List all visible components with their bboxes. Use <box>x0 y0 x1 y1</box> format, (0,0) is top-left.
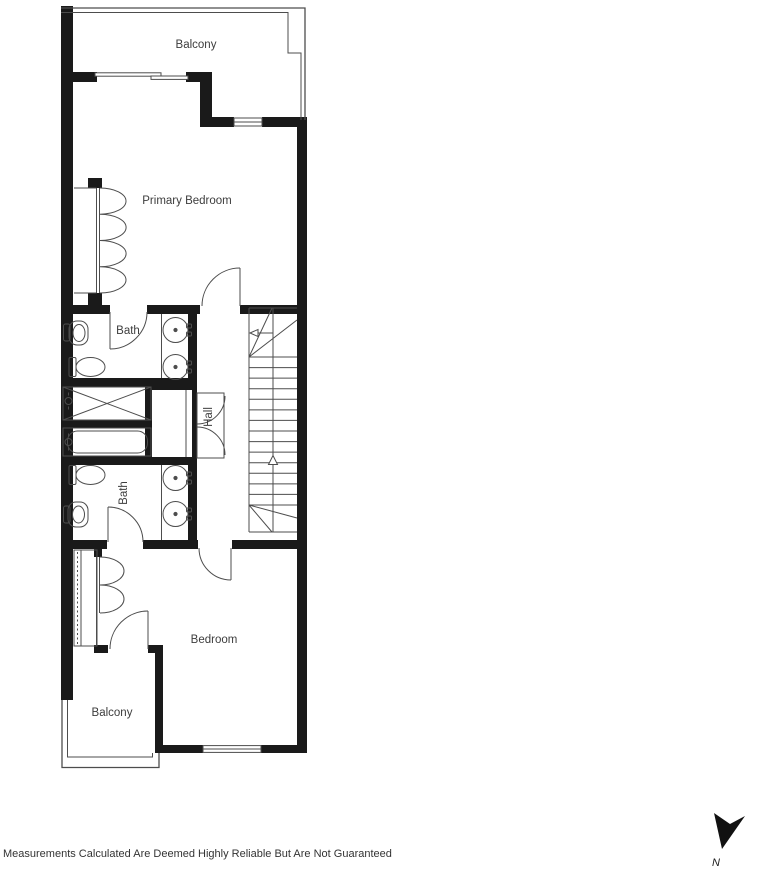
floor-plan-svg: Balcony Primary Bedroom Bath Hall Bath B… <box>0 0 760 872</box>
sink <box>163 466 192 491</box>
stair-arrow-up <box>269 456 278 465</box>
room-label-primary-bedroom: Primary Bedroom <box>142 195 231 207</box>
wall-left <box>61 6 73 700</box>
wall-top-left <box>61 72 97 82</box>
sink <box>163 502 192 527</box>
balcony-top-rail-inner <box>61 13 301 121</box>
primary-closet-lines <box>74 188 97 293</box>
sink <box>163 318 192 343</box>
wall-upper-right-a <box>200 117 234 127</box>
floor-plan-page: Balcony Primary Bedroom Bath Hall Bath B… <box>0 0 760 872</box>
room-label-bath-upper: Bath <box>116 325 140 337</box>
sink <box>163 355 192 380</box>
lower-bath-door <box>108 507 143 542</box>
shower <box>63 387 151 420</box>
room-label-balcony-top: Balcony <box>176 39 217 51</box>
north-arrow-dart <box>714 813 745 849</box>
wall-right <box>297 117 307 753</box>
toilet <box>69 358 105 377</box>
toilet <box>69 466 105 485</box>
disclaimer-text: Measurements Calculated Are Deemed Highl… <box>3 848 392 860</box>
room-label-bedroom: Bedroom <box>191 634 238 646</box>
room-label-bath-lower: Bath <box>118 481 130 505</box>
room-label-hall: Hall <box>203 407 215 427</box>
primary-bedroom-door <box>202 268 240 306</box>
staircase <box>249 308 297 532</box>
bedroom-door <box>199 548 231 580</box>
north-arrow-icon: N <box>712 813 745 869</box>
closets <box>74 188 97 646</box>
stair-arrow-left <box>250 330 258 337</box>
room-label-balcony-bottom: Balcony <box>92 707 133 719</box>
primary-closet-bifold-doors <box>97 188 127 293</box>
walls <box>61 6 307 753</box>
bedroom-closet-bifold-doors <box>97 557 125 645</box>
north-arrow-label: N <box>712 857 720 869</box>
balcony-access-door <box>110 611 148 649</box>
slider-panel-2 <box>151 76 188 79</box>
bathtub <box>63 428 151 456</box>
balcony-top-rail-outer <box>61 8 305 120</box>
